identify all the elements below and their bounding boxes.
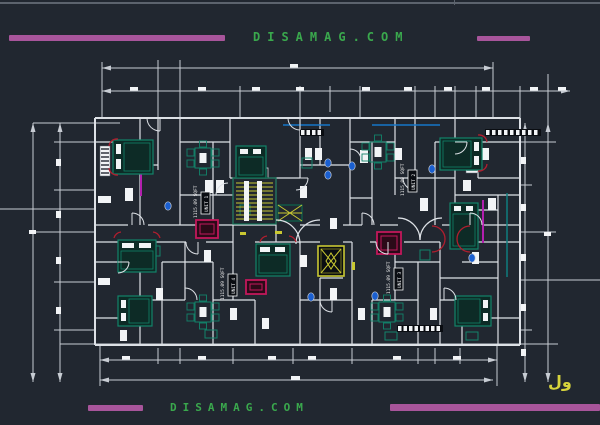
dim-arrow bbox=[546, 123, 551, 132]
unit-area-text: 1115.09 SQFT bbox=[220, 267, 226, 300]
door-swing bbox=[185, 288, 197, 300]
dim-arrow bbox=[58, 123, 63, 132]
wc-fixture bbox=[469, 254, 475, 262]
door-swing bbox=[350, 149, 361, 160]
wc-fixture bbox=[372, 292, 378, 300]
wc-fixture bbox=[165, 202, 171, 210]
floor-label: ول bbox=[548, 372, 572, 391]
banner-bar-bottom-right bbox=[390, 404, 600, 411]
wc-fixture bbox=[325, 171, 331, 179]
dim-arrow bbox=[488, 358, 497, 363]
unit-name-text: UNIT 3 bbox=[397, 271, 403, 288]
unit-area-text: 1115.09 SQFT bbox=[400, 163, 406, 196]
dim-arrow bbox=[58, 373, 63, 382]
wc-fixture bbox=[429, 165, 435, 173]
cad-viewport: DISAMAG.COM 1115.09 SQFTUNIT 11115.09 SQ… bbox=[0, 0, 600, 425]
dim-arrow bbox=[484, 66, 493, 71]
wc-fixture bbox=[349, 162, 355, 170]
dim-arrow bbox=[523, 373, 528, 382]
wc-fixture bbox=[308, 293, 314, 301]
unit-name-text: UNIT 2 bbox=[411, 173, 417, 190]
floor-plan-svg: 1115.09 SQFTUNIT 11115.09 SQFTUNIT 21115… bbox=[0, 0, 600, 425]
wc-fixture bbox=[325, 159, 331, 167]
door-swing bbox=[132, 213, 144, 225]
unit-area-text: 1115.09 SQFT bbox=[386, 261, 392, 294]
door-swing bbox=[444, 288, 456, 300]
banner-bar-bottom-left bbox=[88, 405, 143, 411]
dim-arrow bbox=[31, 123, 36, 132]
dim-arrow bbox=[102, 89, 111, 94]
dim-arrow bbox=[102, 66, 111, 71]
dim-arrow bbox=[100, 378, 109, 383]
door-swing bbox=[186, 242, 198, 254]
door-swing bbox=[320, 300, 332, 312]
unit-name-text: UNIT 1 bbox=[204, 195, 210, 212]
door-swing bbox=[288, 118, 300, 130]
dim-arrow bbox=[484, 378, 493, 383]
dim-arrow bbox=[31, 373, 36, 382]
unit-area-text: 1115.09 SQFT bbox=[193, 185, 199, 218]
dim-arrow bbox=[100, 358, 109, 363]
unit-name-text: UNIT 4 bbox=[231, 277, 237, 294]
site-watermark-bottom: DISAMAG.COM bbox=[170, 401, 309, 414]
